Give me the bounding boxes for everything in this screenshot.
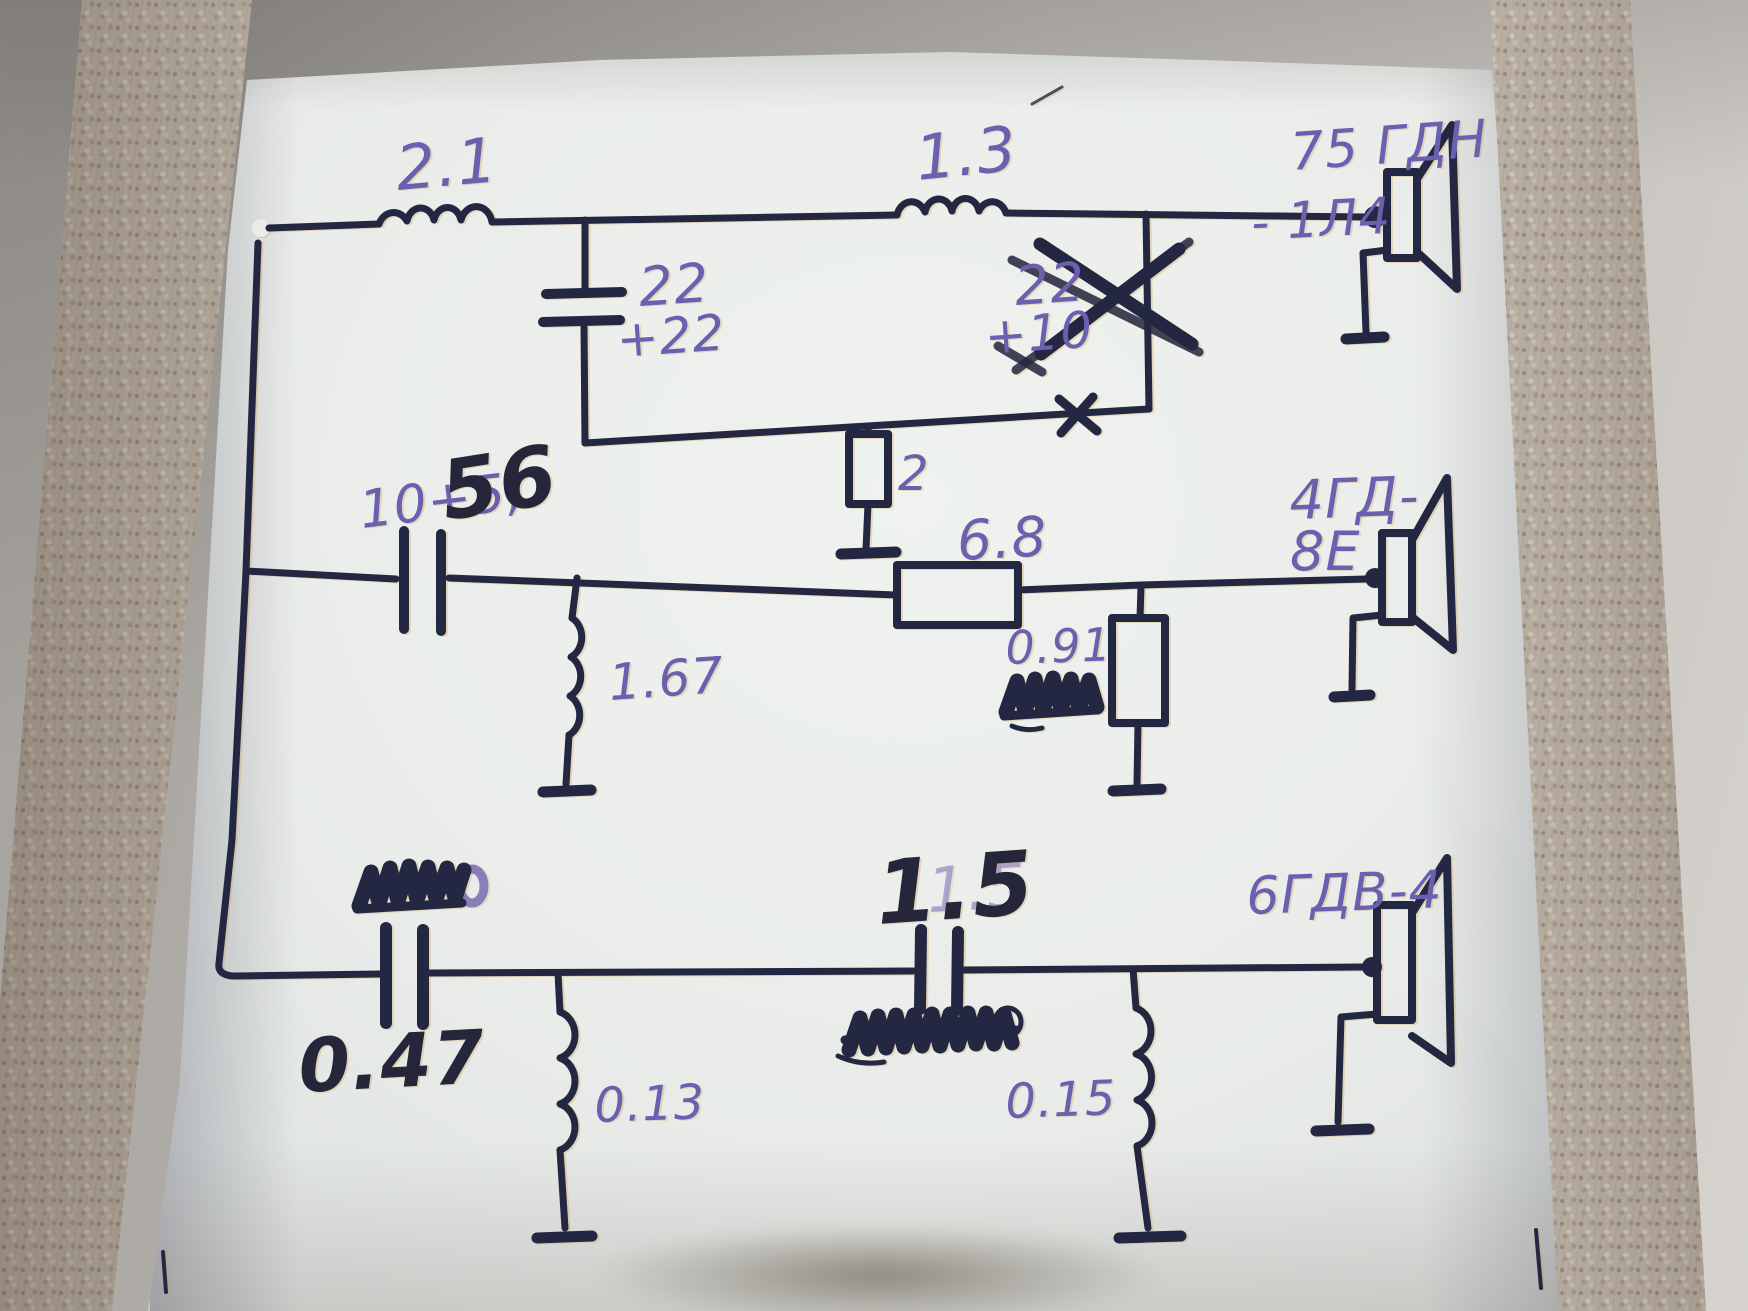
label-capacitor-crossed: +10	[983, 301, 1095, 366]
inductor-coil-1.67	[569, 618, 582, 735]
wire	[269, 224, 379, 228]
pencil-dash	[1032, 87, 1062, 104]
speaker-ground-lead	[1338, 1014, 1377, 1122]
cap-lead	[584, 325, 585, 443]
inductor-coil-0.13	[560, 1012, 575, 1150]
label-inductor: 1.3	[912, 112, 1021, 195]
label-driver-line2: 8Е	[1290, 520, 1360, 583]
label-driver: 6ГДВ-4	[1245, 860, 1443, 927]
resistor-body-0.91	[1112, 618, 1165, 723]
inductor-coil-1.3	[897, 199, 1006, 215]
wire	[246, 571, 396, 579]
wire	[492, 215, 897, 222]
paper-edge-tick-left	[163, 1252, 166, 1292]
label-capacitor: +22	[615, 304, 727, 369]
photo-of-crossover-schematic: 2.1 1.3 22 +22 22 +10 2 75 ГДН - 1Л4	[0, 0, 1748, 1311]
resistor-lead	[1140, 587, 1141, 618]
ground-bar	[1113, 789, 1161, 791]
label-inductor: 1.67	[607, 646, 726, 712]
label-inductor: 2.1	[393, 123, 501, 205]
wire	[449, 578, 897, 595]
resistor-lead	[866, 504, 868, 549]
capacitor-plate	[543, 320, 620, 322]
ground-bar	[841, 552, 896, 554]
speaker-body	[1387, 172, 1417, 258]
label-driver-line1: 75 ГДН	[1289, 109, 1490, 183]
ground-bar	[543, 790, 591, 792]
inductor-lead	[1137, 1146, 1148, 1228]
label-capacitor-marker: 1.5	[872, 831, 1038, 945]
green-mark	[838, 1056, 884, 1063]
speaker-body	[1382, 533, 1412, 622]
label-capacitor-marker: 0.47	[296, 1014, 487, 1110]
inductor-lead	[560, 1150, 565, 1228]
scribble-redaction	[1004, 710, 1096, 716]
inductor-coil-2.1	[379, 207, 492, 224]
wire	[233, 974, 380, 976]
label-inductor: 0.15	[1004, 1070, 1117, 1130]
label-driver-line2: - 1Л4	[1250, 187, 1393, 252]
paper-edge-tick-right	[1536, 1230, 1541, 1288]
capacitor-plate	[546, 292, 622, 294]
ground-bar	[1346, 337, 1384, 339]
resistor-body-6.8	[897, 565, 1018, 625]
inductor-lead	[558, 973, 560, 1012]
scribble-redaction	[357, 903, 462, 909]
ground-bar	[537, 1236, 592, 1238]
ground-bar	[1316, 1129, 1369, 1131]
label-inductor: 0.13	[593, 1074, 706, 1134]
inductor-coil-0.15	[1136, 1008, 1152, 1146]
inductor-lead	[572, 578, 577, 618]
ground-bar	[1119, 1236, 1181, 1238]
label-resistor: 0.91	[1004, 617, 1112, 675]
wire	[429, 971, 913, 973]
crossover-schematic-drawing: 2.1 1.3 22 +22 22 +10 2 75 ГДН - 1Л4	[0, 0, 1748, 1311]
speaker-ground-lead	[1363, 250, 1387, 332]
tweeter-branch: 0.47 1.5 1.5 0.13 0.15 6ГДВ-4	[233, 831, 1451, 1238]
resistor-lead	[1137, 723, 1138, 784]
label-capacitor-marker: 56	[434, 428, 564, 540]
resistor-body-2	[849, 434, 888, 504]
green-mark	[1012, 726, 1042, 730]
label-resistor: 6.8	[955, 504, 1049, 573]
label-resistor: 2	[898, 446, 930, 502]
wire	[963, 967, 1362, 970]
inductor-lead	[1133, 969, 1136, 1008]
bus-wire	[219, 243, 258, 976]
ground-bar	[1334, 695, 1370, 697]
capacitor-plate	[957, 932, 958, 1010]
speaker-ground-lead	[1352, 615, 1382, 689]
inductor-lead	[566, 735, 569, 784]
